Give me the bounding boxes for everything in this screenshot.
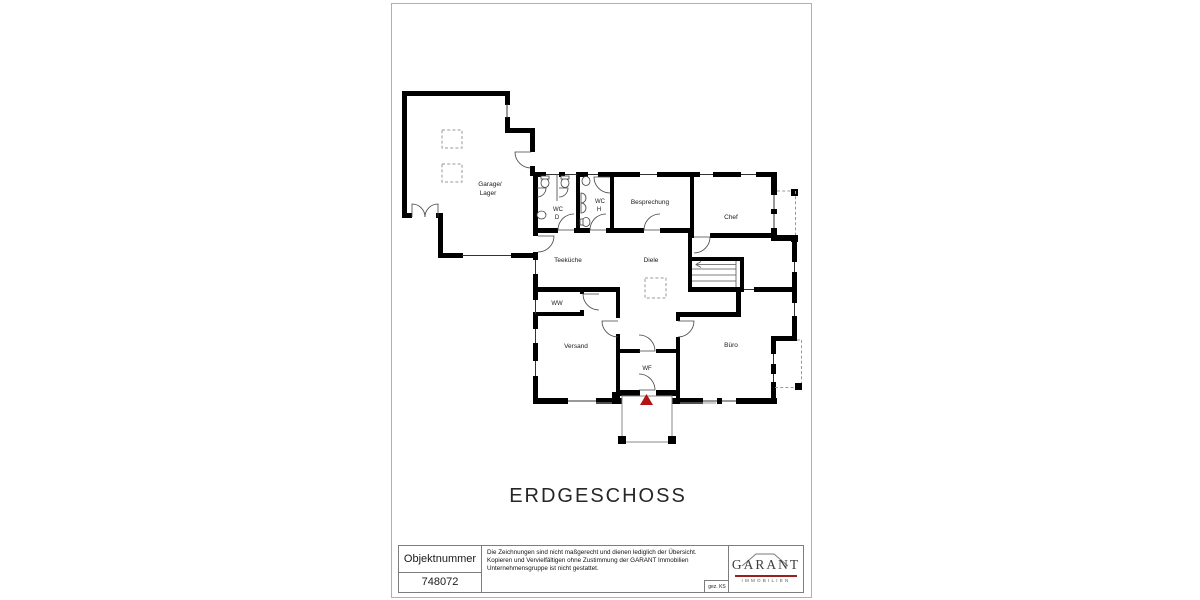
room-label-chef: Chef (724, 214, 738, 221)
door-swing-arcs (412, 152, 710, 390)
room-label-wf: WF (642, 366, 652, 372)
room-label-wc-d-line1: WC (553, 207, 564, 213)
floor-title: ERDGESCHOSS (391, 485, 805, 508)
page-canvas: Garage/ Lager WC D WC H Besprechung Chef… (0, 0, 1200, 600)
garant-logo: GARANT IMMOBILIEN (729, 552, 803, 590)
staircase (692, 261, 736, 287)
window-lines (462, 104, 795, 401)
room-labels: Garage/ Lager WC D WC H Besprechung Chef… (478, 181, 738, 372)
room-label-wc-d-line2: D (555, 215, 560, 221)
room-label-wc-h-line2: H (597, 207, 601, 213)
sanitary-fixtures (537, 174, 590, 227)
room-label-teekueche: Teeküche (554, 257, 582, 264)
logo-subtitle-text: IMMOBILIEN (729, 578, 803, 583)
object-number-label: Objektnummer (399, 546, 481, 572)
disclaimer-text: Die Zeichnungen sind nicht maßgerecht un… (487, 549, 725, 573)
terrace-outline (775, 340, 802, 388)
object-number-cell: Objektnummer 748072 (399, 546, 481, 592)
title-block-divider (481, 546, 482, 592)
room-label-buero: Büro (724, 342, 738, 349)
logo-brand-text: GARANT (729, 557, 803, 573)
disclaimer-line-1: Die Zeichnungen sind nicht maßgerecht un… (487, 549, 725, 557)
room-label-garage-line2: Lager (480, 190, 497, 197)
porch-column (668, 436, 676, 444)
room-label-wc-h-line1: WC (595, 199, 606, 205)
garage-support-column (442, 130, 462, 148)
room-label-besprechung: Besprechung (631, 199, 670, 206)
garage-support-column (442, 164, 462, 182)
diele-support-column (645, 278, 666, 298)
disclaimer-line-2: Kopieren und Vervielfältigen ohne Zustim… (487, 557, 725, 565)
logo-accent-rule (735, 575, 797, 577)
object-number-value: 748072 (399, 573, 481, 592)
room-label-diele: Diele (644, 257, 659, 264)
title-block: Objektnummer 748072 Die Zeichnungen sind… (398, 545, 804, 593)
floor-plan-drawing: Garage/ Lager WC D WC H Besprechung Chef… (0, 0, 1200, 600)
disclaimer-line-3: Unternehmensgruppe ist nicht gestattet. (487, 565, 725, 573)
room-label-garage-line1: Garage/ (478, 181, 502, 188)
porch-column (618, 436, 626, 444)
dashed-outlines (442, 130, 802, 388)
chef-bay-outline (777, 191, 796, 235)
signed-box: gez. KS (704, 580, 729, 593)
room-label-versand: Versand (564, 343, 588, 350)
room-label-ww: WW (551, 301, 563, 307)
